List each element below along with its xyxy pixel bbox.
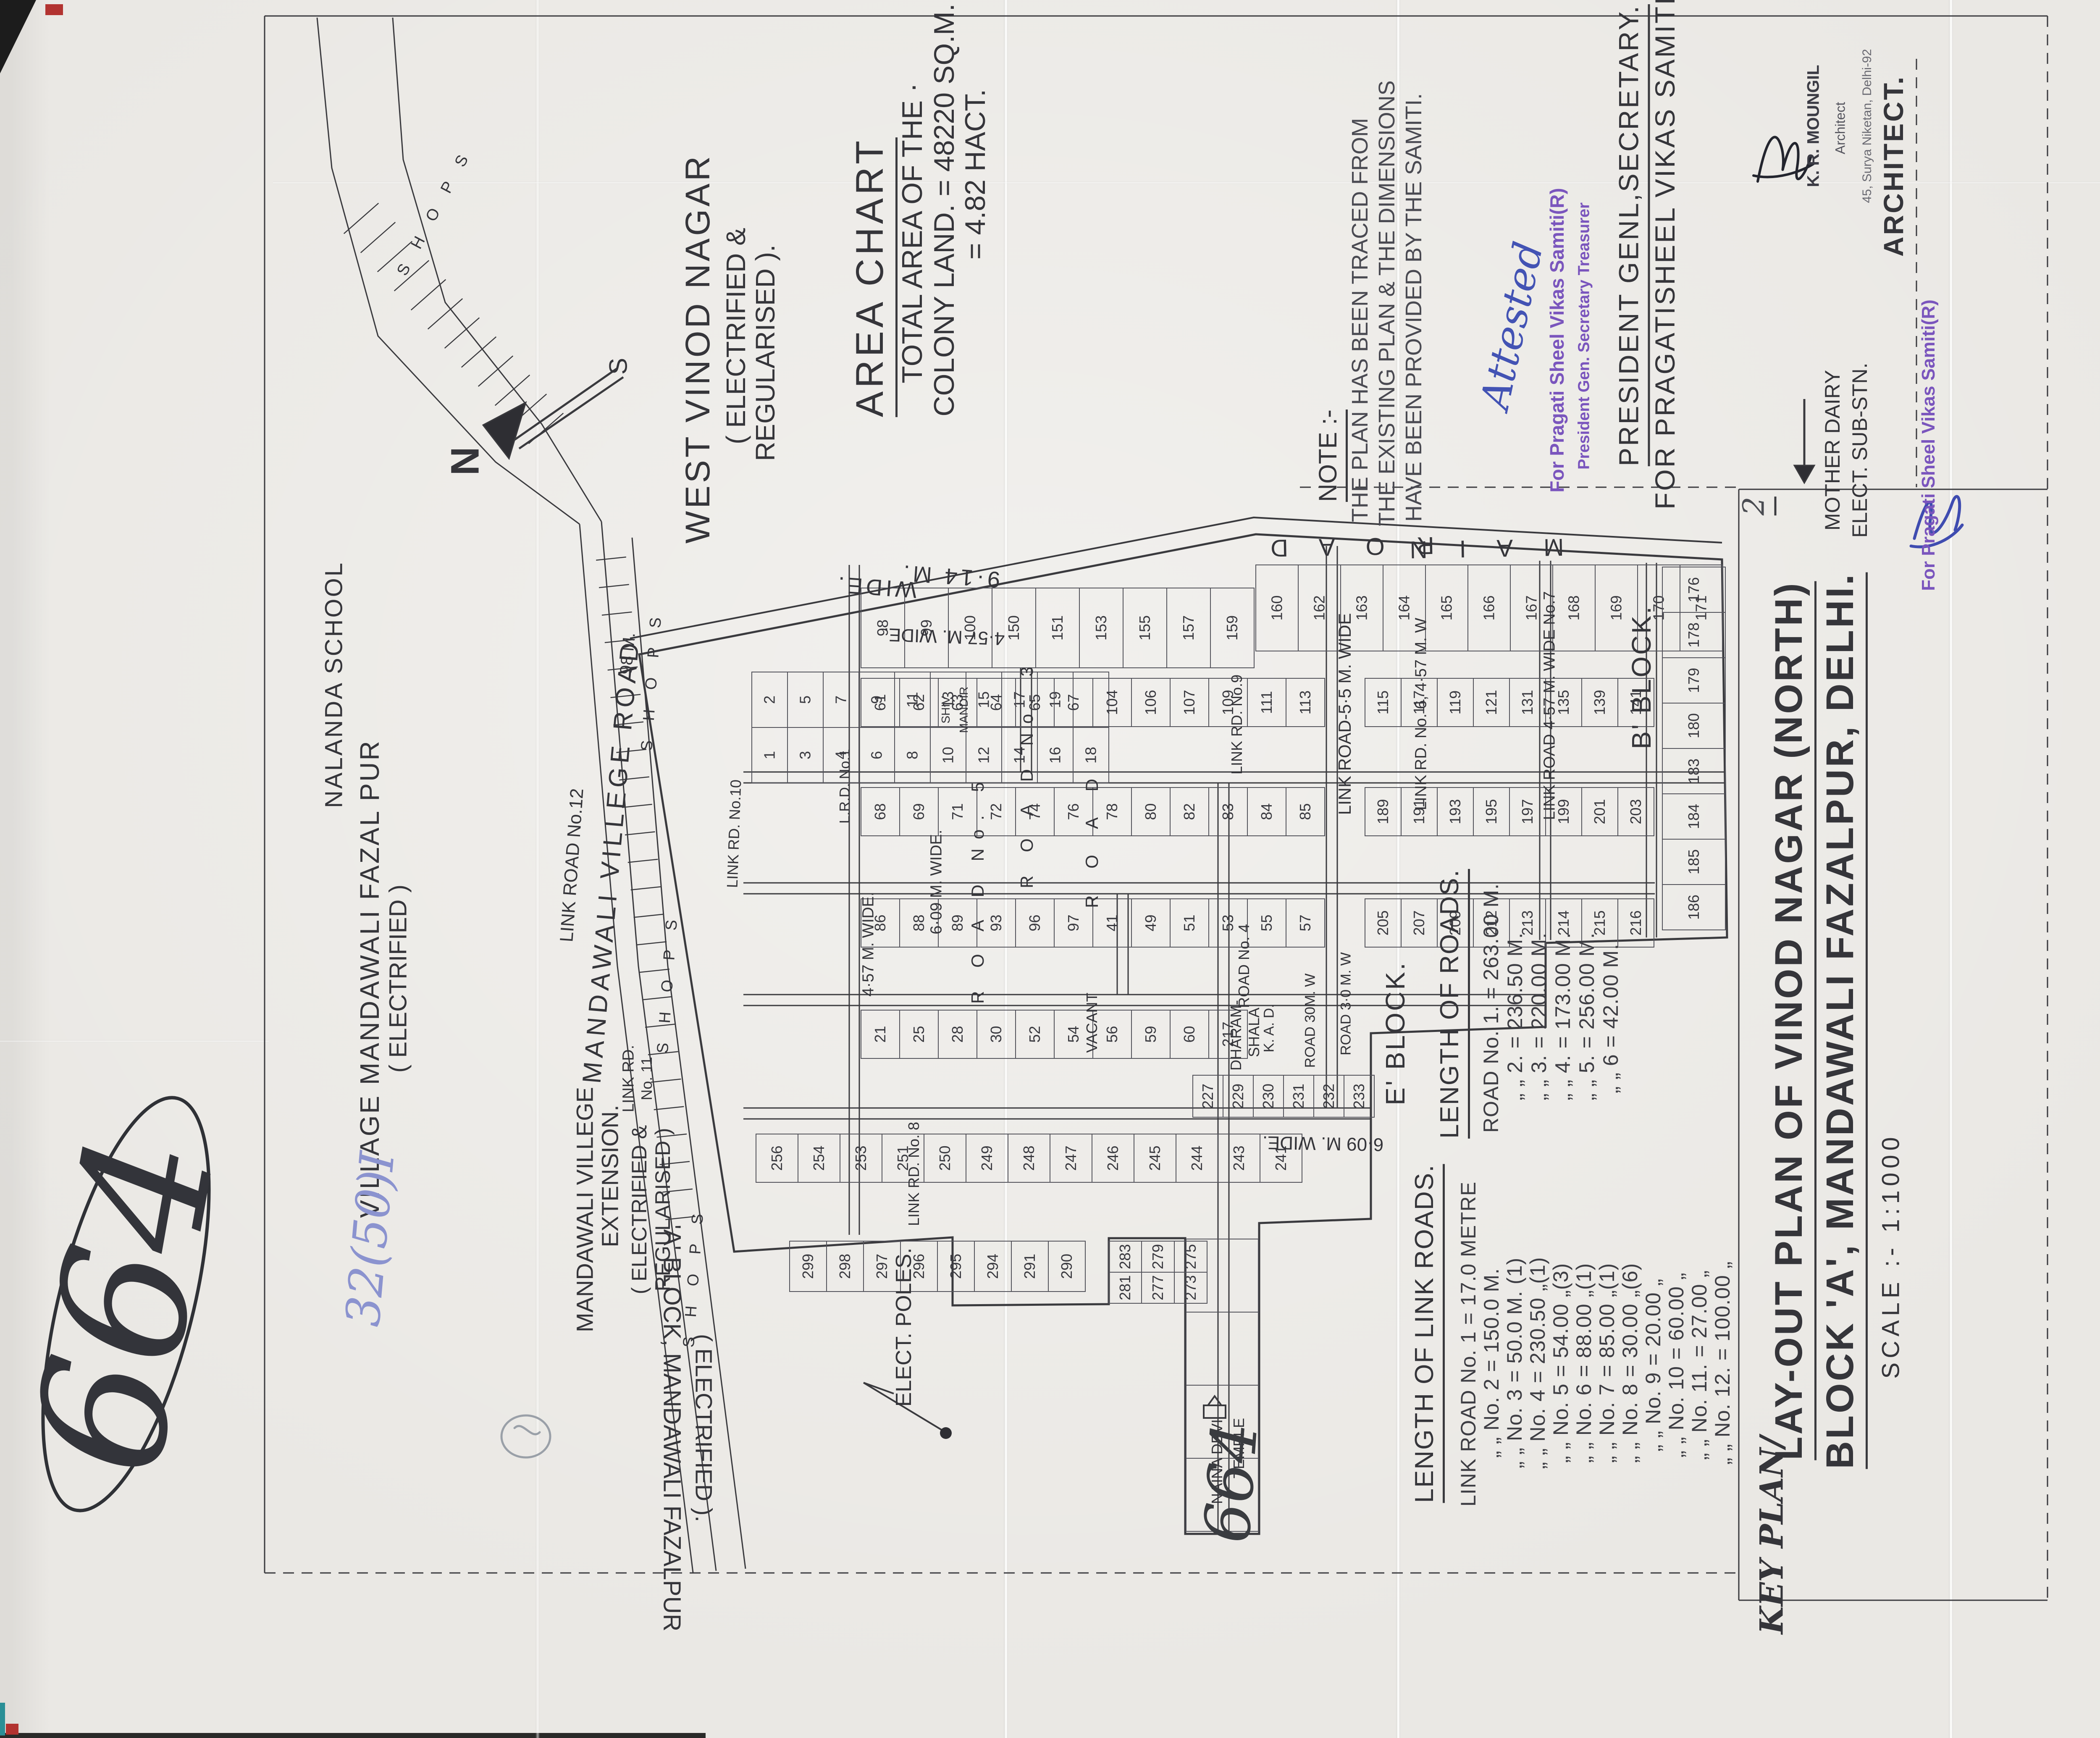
link-roads-table-row: „ „ No. 2 = 150.0 M. bbox=[1479, 1268, 1504, 1458]
area-chart-line2: COLONY LAND. = 48220 SQ.M. bbox=[928, 3, 961, 416]
west-vinod-1: WEST VINOD NAGAR bbox=[678, 154, 718, 543]
plot-number: 250 bbox=[936, 1145, 953, 1171]
plot-number: 54 bbox=[1065, 1026, 1082, 1042]
link-roads-table-row: „ „ No. 6 = 88.00 „(1) bbox=[1572, 1263, 1596, 1463]
plot-number: 8 bbox=[904, 751, 921, 759]
link-roads-table-row: LINK ROAD No. 1 = 17.0 METRE bbox=[1456, 1181, 1480, 1507]
link-roads-table-row: „ „ No. 3 = 50.0 M. (1) bbox=[1502, 1258, 1527, 1468]
a-block-1: 'A' BLOCK, MANDAWALI FAZALPUR bbox=[658, 1225, 686, 1632]
plot-number: 290 bbox=[1058, 1254, 1075, 1279]
plot-number: 294 bbox=[984, 1254, 1001, 1279]
plot-number: 213 bbox=[1519, 910, 1536, 935]
plot-number: 53 bbox=[1219, 914, 1236, 931]
plot-number: 183 bbox=[1685, 759, 1702, 784]
plot-number: 283 bbox=[1116, 1244, 1134, 1269]
plot-number: 249 bbox=[978, 1145, 995, 1171]
plot-number: 163 bbox=[1353, 595, 1370, 620]
mother-dairy: MOTHER DAIRY bbox=[1820, 370, 1845, 530]
road-no3: R O A D No. 3 bbox=[1017, 657, 1037, 888]
plot-number: 275 bbox=[1182, 1244, 1199, 1269]
link-rd-8: LINK RD. No. 8 bbox=[905, 1122, 923, 1226]
nalanda-school: NALANDA SCHOOL bbox=[320, 561, 348, 808]
plot-number: 159 bbox=[1223, 615, 1241, 641]
plot-number: 7 bbox=[832, 696, 850, 704]
road-no4: ROAD No. 4 bbox=[1235, 924, 1253, 1008]
plot-number: 279 bbox=[1149, 1244, 1166, 1269]
link-rd-6: LINK RD. No. 6, 4·57 M. W bbox=[1412, 618, 1431, 810]
plot-number: 243 bbox=[1230, 1145, 1247, 1171]
b-block: B' BLOCK. bbox=[1626, 605, 1657, 749]
plot-number: 3 bbox=[797, 751, 814, 759]
road-3m: ROAD 3·0 M. W bbox=[1338, 952, 1354, 1055]
elect-poles: ELECT. POLES. bbox=[891, 1248, 916, 1407]
link-roads-table-row: „ „ No. 12. = 100.00 „ bbox=[1710, 1261, 1735, 1465]
roads-table-row: „ „ 4. = 173.00 M. bbox=[1551, 932, 1575, 1100]
roads-table-row: „ „ 2. = 236.50 M. bbox=[1503, 932, 1527, 1100]
plot-number: 121 bbox=[1483, 690, 1500, 715]
wide-609: 6·09 M. WIDE. bbox=[928, 830, 946, 934]
link-roads-table-row: „ „ No. 4 = 230.50 „(1) bbox=[1525, 1257, 1550, 1469]
plot-number: 215 bbox=[1591, 910, 1608, 935]
roads-table-row: „ „ 3. = 220.00 M. bbox=[1527, 932, 1551, 1100]
plot-number: 85 bbox=[1297, 803, 1314, 820]
plot-number: 18 bbox=[1082, 747, 1100, 764]
plot-number: 232 bbox=[1320, 1084, 1337, 1109]
plot-number: 164 bbox=[1396, 595, 1413, 620]
plot-number: 12 bbox=[975, 747, 992, 764]
link-roads-table-row: „ „ No. 11. = 27.00 „ bbox=[1687, 1270, 1711, 1460]
plot-number: 119 bbox=[1446, 690, 1464, 714]
plot-number: 28 bbox=[949, 1026, 966, 1042]
plot-number: 64 bbox=[987, 694, 1005, 711]
plot-number: 88 bbox=[910, 914, 927, 931]
link-roads-table-row: „ „ No. 8 = 30.00 „(6) bbox=[1618, 1263, 1642, 1463]
architect-title: ARCHITECT. bbox=[1877, 75, 1909, 257]
note-line-2: THE EXISTING PLAN & THE DIMENSIONS bbox=[1374, 80, 1400, 526]
wide-457-2: 4·57 M. WIDE. bbox=[860, 892, 878, 996]
plot-number: 201 bbox=[1591, 799, 1608, 824]
plot-number: 169 bbox=[1608, 595, 1625, 620]
title-scale: SCALE :- 1:1000 bbox=[1877, 1133, 1905, 1378]
plot-number: 56 bbox=[1103, 1026, 1121, 1042]
plot-number: 233 bbox=[1350, 1084, 1368, 1109]
vacant: VACANT bbox=[1083, 992, 1101, 1053]
plot-number: 106 bbox=[1142, 690, 1159, 715]
plot-number: 281 bbox=[1116, 1275, 1134, 1300]
plot-number: 216 bbox=[1627, 910, 1644, 935]
main-road-main: M A I N bbox=[1397, 533, 1564, 564]
plot-number: 153 bbox=[1092, 615, 1110, 641]
plot-number: 60 bbox=[1181, 1026, 1198, 1042]
dharamshala-1: DHARAM- bbox=[1227, 1000, 1245, 1071]
roads-table-row: „ „ 5. = 256.00 M. bbox=[1575, 932, 1599, 1100]
plot-number: 205 bbox=[1374, 910, 1391, 935]
plot-number: 230 bbox=[1260, 1084, 1277, 1109]
samiti-stamp-line1: For Pragati Sheel Vikas Samiti(R) bbox=[1546, 188, 1568, 492]
link-roads-table-row: „ „ No. 9 = 20.00 „ bbox=[1641, 1279, 1665, 1452]
plot-number: 131 bbox=[1519, 690, 1536, 715]
plot-number: 5 bbox=[797, 696, 814, 704]
roads-table-row: ROAD No. 1. = 263.00 M. bbox=[1479, 883, 1503, 1133]
plot-number: 295 bbox=[947, 1254, 964, 1279]
plot-number: 80 bbox=[1142, 803, 1159, 820]
area-chart-title: AREA CHART bbox=[848, 137, 898, 417]
link-rd-11b: No. 11 bbox=[638, 1057, 656, 1100]
plot-number: 62 bbox=[910, 694, 927, 711]
plot-number: 68 bbox=[871, 803, 889, 820]
plot-number: 291 bbox=[1021, 1254, 1038, 1279]
link-rd-11a: LINK RD. bbox=[620, 1045, 638, 1112]
road-no2: R O A D bbox=[1082, 768, 1102, 908]
plot-number: 93 bbox=[987, 914, 1005, 931]
plot-number: 107 bbox=[1181, 690, 1198, 715]
elect-substn: ELECT. SUB-STN. bbox=[1848, 363, 1872, 538]
link-road-7: LINK ROAD 4·57 M. WIDE No.7 bbox=[1541, 591, 1559, 820]
plot-number: 21 bbox=[871, 1026, 889, 1042]
note-line-3: HAVE BEEN PROVIDED BY THE SAMITI. bbox=[1401, 93, 1427, 522]
plot-number: 41 bbox=[1103, 914, 1121, 931]
plot-number: 155 bbox=[1136, 615, 1153, 641]
plot-number: 67 bbox=[1065, 694, 1082, 711]
plot-number: 1 bbox=[761, 751, 778, 759]
plot-number: 69 bbox=[910, 803, 927, 820]
plot-number: 298 bbox=[836, 1254, 853, 1279]
plot-number: 299 bbox=[799, 1254, 816, 1279]
plot-number: 55 bbox=[1258, 914, 1275, 931]
plot-cell bbox=[1186, 1312, 1258, 1385]
plot-number: 72 bbox=[987, 803, 1005, 820]
plot-number: 96 bbox=[1026, 914, 1043, 931]
link-road-55: LINK ROAD-5·5 M. WIDE bbox=[1335, 613, 1355, 815]
link-roads-table-row: „ „ No. 5 = 54.00 „(3) bbox=[1549, 1263, 1573, 1463]
plot-number: 167 bbox=[1523, 595, 1540, 620]
plot-number: 52 bbox=[1026, 1026, 1043, 1042]
link-roads-table-row: „ „ No. 10 = 60.00 „ bbox=[1664, 1272, 1688, 1457]
lrd-no1: L.R.D. No.1 bbox=[837, 749, 853, 824]
plot-number: 244 bbox=[1188, 1145, 1205, 1171]
plot-number: 16 bbox=[1047, 747, 1064, 764]
e-block: E' BLOCK. bbox=[1380, 961, 1411, 1105]
plot-number: 168 bbox=[1565, 595, 1583, 620]
roads-table-row: „ „ 6 = 42.00 M. bbox=[1599, 944, 1623, 1093]
architect-stamp-name: K. R. MOUNGIL bbox=[1804, 65, 1823, 187]
dharamshala-2: SHALA bbox=[1245, 1008, 1263, 1057]
shiv-mandir: MANDIR bbox=[957, 687, 971, 733]
plot-number: 97 bbox=[1065, 914, 1082, 931]
note-line-1: THE PLAN HAS BEEN TRACED FROM bbox=[1347, 118, 1373, 522]
plot-number: 104 bbox=[1103, 690, 1121, 715]
plot-number: 162 bbox=[1311, 595, 1328, 620]
plot-number: 71 bbox=[949, 803, 966, 820]
plot-number: 2 bbox=[761, 696, 778, 704]
page-664-small: 664 bbox=[1191, 1420, 1272, 1545]
plot-number: 10 bbox=[940, 747, 957, 764]
plot-number: 195 bbox=[1483, 799, 1500, 824]
plot-number: 180 bbox=[1685, 713, 1702, 738]
plot-number: 256 bbox=[768, 1145, 785, 1171]
plot-number: 214 bbox=[1555, 910, 1572, 935]
plot-number: 150 bbox=[1005, 615, 1022, 641]
plot-number: 184 bbox=[1685, 804, 1702, 829]
village-mandawali-1: VILLAGE MANDAWALI FAZAL PUR bbox=[354, 739, 385, 1218]
road-30m: ROAD 30M. W bbox=[1302, 974, 1319, 1068]
village-mandawali-2: ( ELECTRIFIED ) bbox=[384, 885, 412, 1073]
plot-number: 113 bbox=[1297, 690, 1314, 714]
plot-number: 115 bbox=[1374, 690, 1391, 714]
plot-number: 197 bbox=[1519, 799, 1536, 824]
plot-number: 247 bbox=[1062, 1145, 1079, 1171]
plot-number: 25 bbox=[910, 1026, 927, 1042]
samiti-stamp-line2: President Gen. Secretary Treasurer bbox=[1575, 202, 1593, 470]
plot-number: 19 bbox=[1047, 691, 1064, 708]
north-n: N bbox=[443, 447, 488, 476]
plot-number: 61 bbox=[871, 694, 889, 711]
plot-number: 166 bbox=[1480, 595, 1498, 620]
architect-stamp-title: Architect bbox=[1833, 102, 1848, 154]
plot-number: 227 bbox=[1199, 1084, 1216, 1109]
plot-number: 254 bbox=[810, 1145, 827, 1171]
keyplan-handwritten: KEY PLAN/ bbox=[1753, 1436, 1790, 1634]
plot-number: 186 bbox=[1685, 895, 1702, 920]
plot-number: 277 bbox=[1149, 1275, 1166, 1300]
plot-number: 89 bbox=[949, 914, 966, 931]
plot-number: 297 bbox=[873, 1254, 890, 1279]
title-line1: LAY-OUT PLAN OF VINOD NAGAR (NORTH) bbox=[1767, 581, 1816, 1460]
plot-number: 151 bbox=[1049, 615, 1066, 641]
wide-609-b: 6·09 M. WIDE. bbox=[1262, 1132, 1383, 1155]
plot-number: 189 bbox=[1374, 799, 1391, 824]
title-line2: BLOCK 'A', MANDAWALI FAZALPUR, DELHI. bbox=[1818, 572, 1868, 1469]
plot-number: 78 bbox=[1103, 803, 1121, 820]
plot-number: 160 bbox=[1268, 595, 1286, 620]
a-block-2: ( ELECTRIFIED ). bbox=[690, 1334, 718, 1522]
scanned-layout-plan: 2579111315171913468101214161898991001501… bbox=[0, 0, 2100, 1738]
plot-number: 248 bbox=[1020, 1145, 1037, 1171]
mve-2: EXTENSION. bbox=[596, 1105, 624, 1247]
plot-number: 6 bbox=[868, 751, 885, 759]
president-line1: PRESIDENT GENL,SECRETARY. bbox=[1613, 4, 1650, 466]
plot-number: 178 bbox=[1685, 622, 1702, 648]
plot-number: 245 bbox=[1146, 1145, 1163, 1171]
plot-number: 273 bbox=[1182, 1275, 1199, 1300]
plot-number: 203 bbox=[1627, 799, 1644, 824]
area-chart-line3: = 4.82 HACT. bbox=[959, 89, 992, 260]
plot-number: 139 bbox=[1591, 690, 1608, 715]
plot-number: 76 bbox=[1065, 803, 1082, 820]
plot-number: 59 bbox=[1142, 1026, 1159, 1042]
plot-number: 193 bbox=[1446, 799, 1464, 824]
roads-table-heading: LENGTH OF ROADS. bbox=[1435, 869, 1470, 1139]
plot-number: 84 bbox=[1258, 803, 1275, 820]
plot-number: 229 bbox=[1229, 1084, 1247, 1109]
plot-number: 176 bbox=[1685, 577, 1702, 602]
west-vinod-3: REGULARISED ). bbox=[750, 244, 781, 461]
note-heading: NOTE :- bbox=[1313, 410, 1348, 502]
hand-note-2: 2 bbox=[1737, 497, 1777, 516]
temple-icon bbox=[1204, 1396, 1226, 1418]
plot-number: 49 bbox=[1142, 914, 1159, 931]
west-vinod-2: ( ELECTRIFIED & bbox=[720, 228, 751, 444]
area-chart-line1: TOTAL AREA OF THE · bbox=[896, 83, 929, 383]
kad-road: K. A. D. bbox=[1261, 1004, 1278, 1052]
link-roads-table-heading: LENGTH OF LINK ROADS. bbox=[1410, 1164, 1445, 1503]
shiv: SHIV bbox=[939, 696, 953, 723]
pragati-stamp2: For Pragati Sheel Vikas Samiti(R) bbox=[1918, 299, 1939, 591]
plot-number: 231 bbox=[1290, 1084, 1307, 1109]
plot-number: 185 bbox=[1685, 849, 1702, 874]
plot-number: 57 bbox=[1297, 914, 1314, 931]
plot-number: 111 bbox=[1258, 691, 1275, 714]
plot-number: 83 bbox=[1219, 803, 1236, 820]
plot-number: 165 bbox=[1438, 595, 1455, 620]
wide-457-top: 4·57 M. WIDE. bbox=[883, 624, 1005, 649]
road-98m: 98 M. bbox=[617, 632, 639, 675]
mve-3: ( ELECTRIFIED & bbox=[627, 1125, 651, 1294]
plot-number: 253 bbox=[852, 1145, 869, 1171]
faint-circle bbox=[501, 1415, 550, 1457]
architect-stamp-addr: 45, Surya Niketan, Delhi-92 bbox=[1860, 49, 1874, 203]
plot-number: 157 bbox=[1180, 615, 1197, 641]
link-roads-table-row: „ „ No. 7 = 85.00 „(1) bbox=[1595, 1263, 1619, 1463]
road-no5: R O A D No. 5 bbox=[968, 773, 988, 1004]
president-line2: FOR PRAGATISHEEL VIKAS SAMITI. bbox=[1649, 0, 1681, 509]
plot-number: 207 bbox=[1410, 910, 1428, 935]
north-s: S bbox=[604, 358, 633, 375]
faint-scribble bbox=[514, 1426, 540, 1434]
plot-number: 246 bbox=[1104, 1145, 1121, 1171]
plot-number: 82 bbox=[1181, 803, 1198, 820]
link-rd-9: LINK RD. No.9 bbox=[1228, 675, 1246, 774]
plot-number: 30 bbox=[987, 1026, 1005, 1042]
mve-1: MANDAWALI VILLEGE bbox=[571, 1087, 598, 1332]
plot-number: 51 bbox=[1181, 914, 1198, 931]
plot-number: 179 bbox=[1685, 668, 1702, 693]
